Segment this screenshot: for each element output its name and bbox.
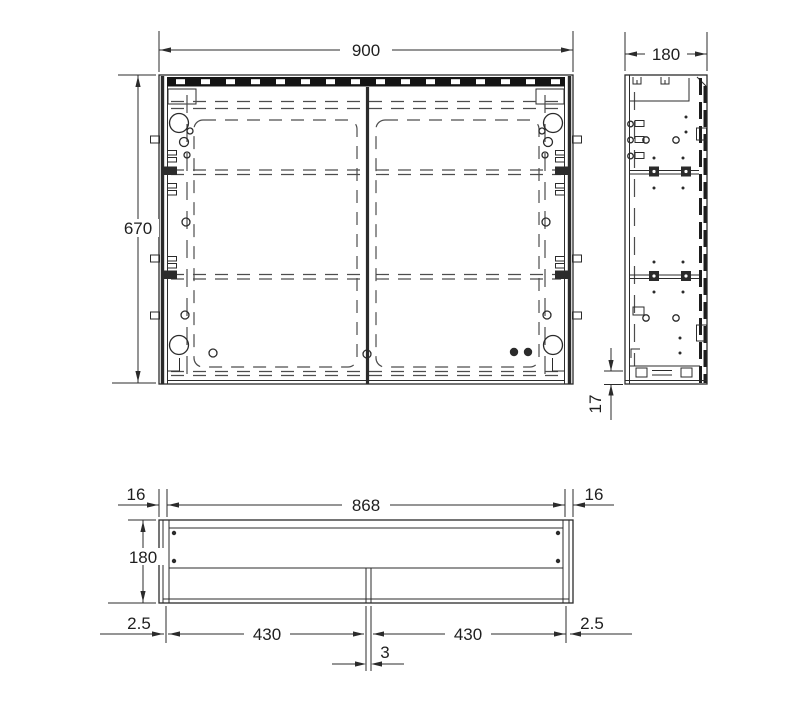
dim-top-left-panel: 16	[118, 485, 167, 517]
dim-top-right-panel: 16	[565, 485, 614, 517]
screw-dot	[172, 531, 176, 535]
dim-side-bottom-panel-value: 17	[586, 395, 605, 414]
shelf-clip	[555, 167, 568, 176]
screw-dot	[556, 559, 560, 563]
mounting-rail-slots	[167, 77, 565, 87]
cabinet-technical-drawing: 900 670 180 17 16	[0, 0, 802, 706]
dim-right-reveal-value: 2.5	[580, 614, 604, 633]
screw-dot	[556, 531, 560, 535]
technical-drawing-canvas: 900 670 180 17 16	[0, 0, 802, 706]
side-back-rail	[697, 78, 707, 383]
side-hinge-plates	[628, 121, 644, 359]
left-mirror-door-hidden	[194, 120, 357, 367]
dim-left-reveal-value: 2.5	[127, 614, 151, 633]
screw-dot	[172, 559, 176, 563]
dim-side-depth: 180	[625, 32, 707, 71]
cable-outlet-dot	[510, 348, 518, 356]
wall-bracket	[573, 136, 582, 143]
side-bottom-panel	[625, 366, 707, 381]
wall-bracket	[151, 312, 160, 319]
hinge-bottom-right	[544, 336, 563, 355]
dim-side-bottom-panel: 17	[586, 348, 623, 420]
dim-center-gap-value: 3	[380, 643, 389, 662]
dim-top-right-panel-value: 16	[585, 485, 604, 504]
side-view	[625, 75, 707, 384]
wall-bracket	[573, 255, 582, 262]
side-shelf-1	[630, 167, 699, 177]
dim-right-door-value: 430	[454, 625, 482, 644]
hinge-bottom-left	[170, 336, 189, 355]
side-holes	[643, 116, 688, 355]
dim-top-inner-width-value: 868	[352, 496, 380, 515]
top-clip	[661, 77, 669, 84]
dim-top-depth-value: 180	[129, 548, 157, 567]
right-mirror-door-hidden	[376, 120, 539, 367]
cable-outlet-dot	[524, 348, 532, 356]
dim-door-chain: 2.5 430 430 2.5 3	[100, 606, 632, 671]
wall-bracket	[151, 136, 160, 143]
shelf-clip	[164, 167, 177, 176]
front-top-rail	[167, 77, 565, 87]
shelf-clip	[555, 271, 568, 280]
front-view	[151, 75, 582, 384]
hinge-top-left	[170, 114, 189, 133]
wall-bracket	[151, 255, 160, 262]
dim-side-depth-value: 180	[652, 45, 680, 64]
wall-bracket	[573, 312, 582, 319]
dim-front-width-value: 900	[352, 41, 380, 60]
dim-top-left-panel-value: 16	[127, 485, 146, 504]
dim-front-width: 900	[159, 31, 573, 72]
shelf-clip	[164, 271, 177, 280]
dim-front-height-value: 670	[124, 219, 152, 238]
dim-front-height: 670	[112, 75, 159, 383]
top-clip	[633, 77, 641, 84]
top-view	[159, 520, 573, 603]
front-carcass	[159, 75, 573, 384]
side-shelf-2	[630, 271, 699, 281]
dim-left-door-value: 430	[253, 625, 281, 644]
dim-top-inner-width: 868	[167, 496, 565, 515]
dim-top-depth: 180	[108, 520, 164, 603]
hinge-top-right	[544, 114, 563, 133]
